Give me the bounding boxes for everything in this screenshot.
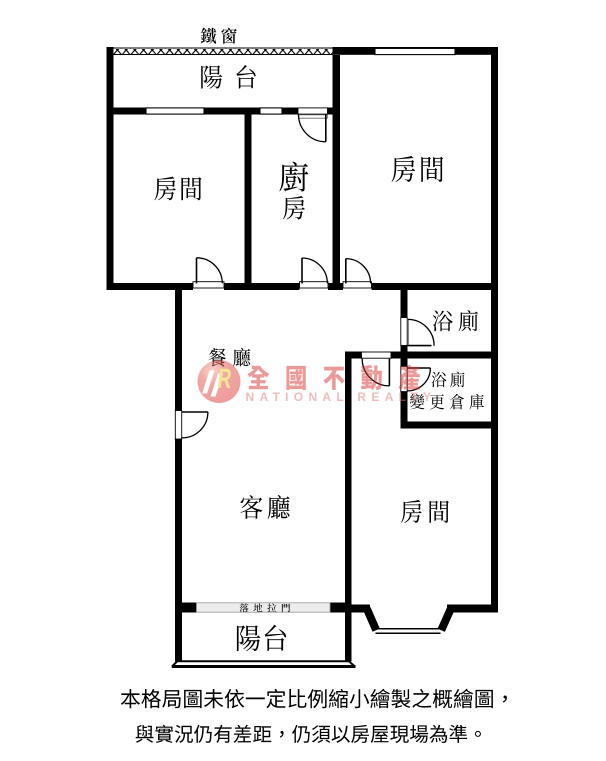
svg-text:NATIONAL REALTY: NATIONAL REALTY [246,390,437,404]
